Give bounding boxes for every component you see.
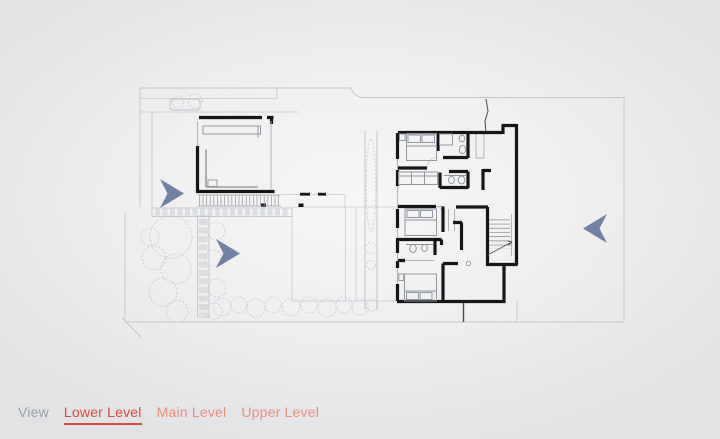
deck-steps xyxy=(198,195,281,206)
view-label: View xyxy=(18,404,49,421)
level-toolbar: View Lower Level Main Level Upper Level xyxy=(18,404,319,425)
bed-2 xyxy=(405,209,437,236)
tab-main-level[interactable]: Main Level xyxy=(157,404,227,423)
planter-strip xyxy=(365,131,377,310)
sofa xyxy=(399,172,438,185)
house-walls xyxy=(397,124,518,302)
main-house xyxy=(397,124,518,302)
bed-3 xyxy=(399,274,437,301)
staircase xyxy=(488,220,513,256)
nav-arrow-left-icon[interactable] xyxy=(583,214,607,243)
hedge-row xyxy=(213,297,378,317)
floor-drain xyxy=(466,261,470,265)
door-arcs xyxy=(427,157,443,242)
bath-fixtures xyxy=(406,134,466,253)
tab-lower-level[interactable]: Lower Level xyxy=(64,404,142,425)
floor-plan-drawing xyxy=(0,0,720,439)
patio xyxy=(281,195,397,302)
parked-car xyxy=(170,99,200,110)
floor-plan-viewer: View Lower Level Main Level Upper Level xyxy=(0,0,720,439)
garage xyxy=(196,118,275,193)
tab-upper-level[interactable]: Upper Level xyxy=(241,404,319,423)
garage-thin-walls xyxy=(198,121,272,189)
nav-arrow-right-icon[interactable] xyxy=(160,179,184,208)
utility-line xyxy=(485,99,488,133)
garage-interior xyxy=(203,126,261,187)
nav-arrow-right-icon[interactable] xyxy=(216,239,240,268)
bed-master xyxy=(400,134,437,161)
